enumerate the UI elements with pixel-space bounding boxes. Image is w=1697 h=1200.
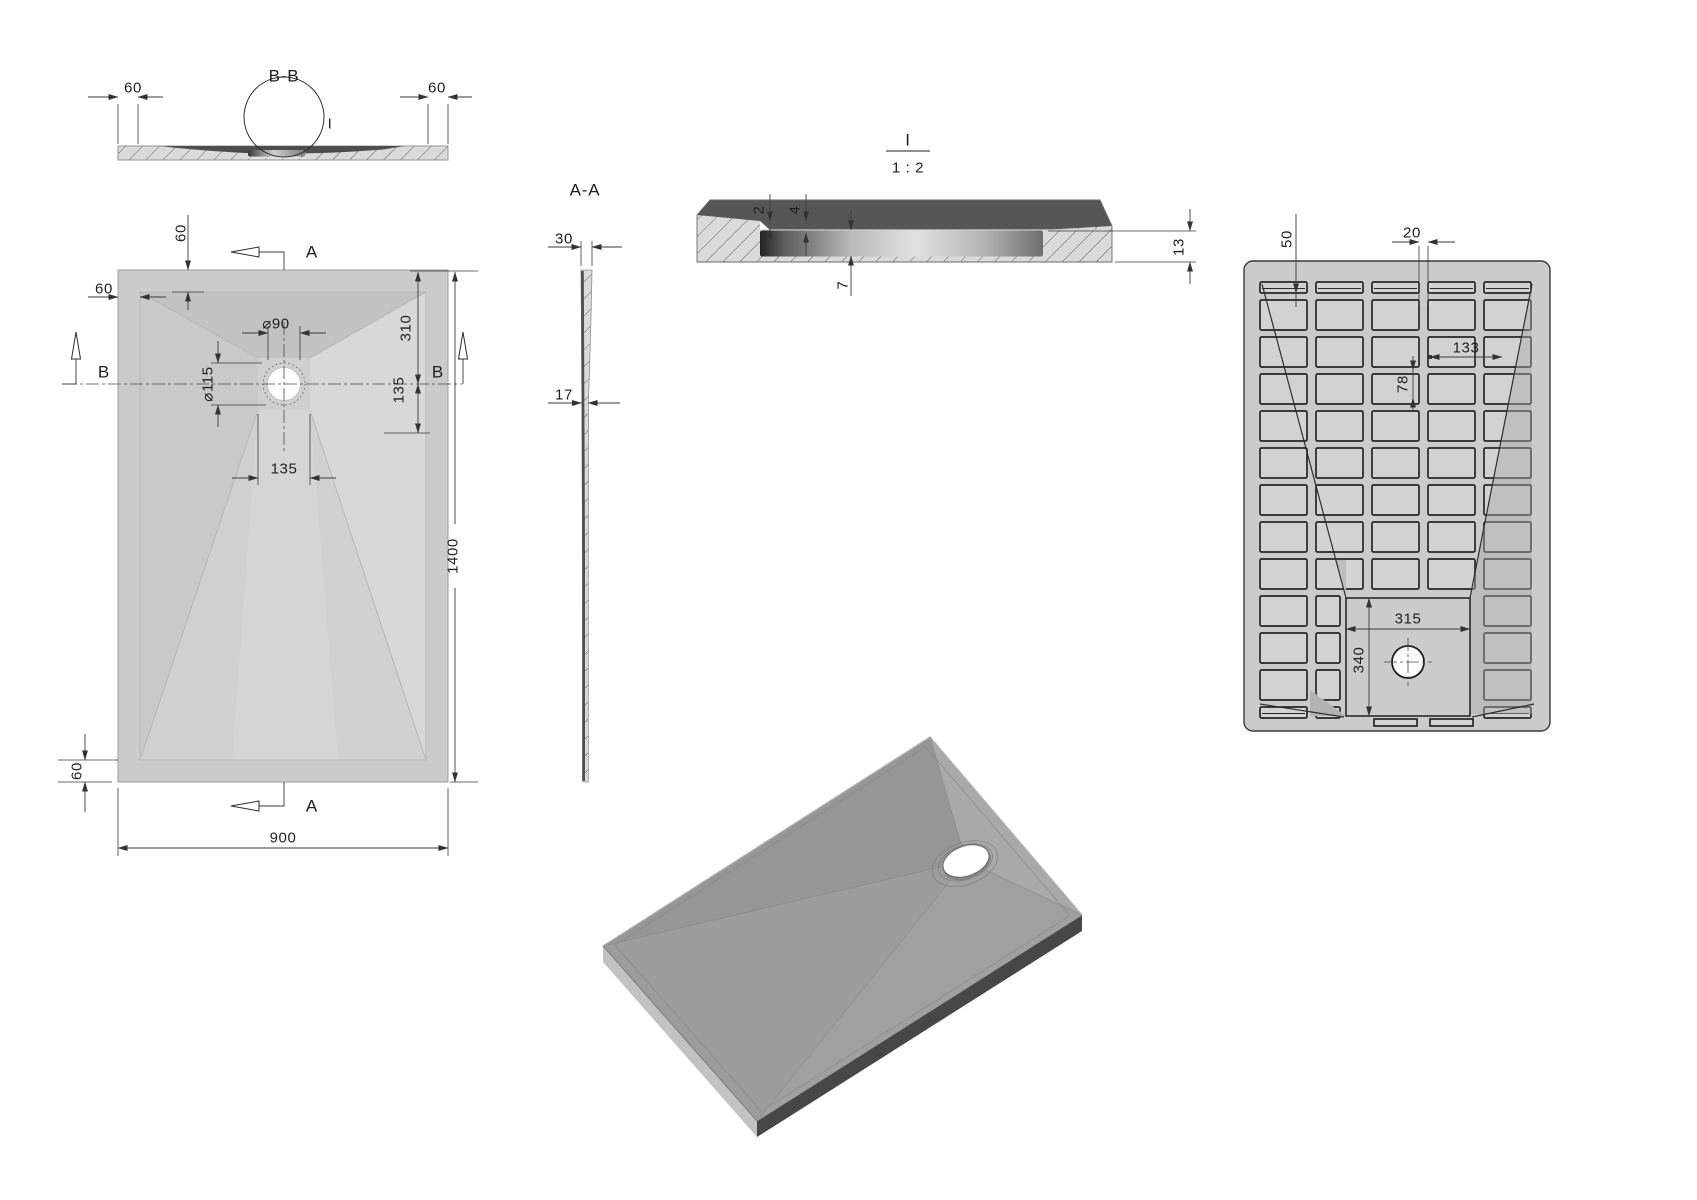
rib-pocket <box>1372 448 1419 478</box>
bb-dim-left: 60 <box>124 80 142 97</box>
isometric-view <box>603 737 1082 1137</box>
drawing-canvas: B-B I 60 60 60 <box>0 0 1697 1200</box>
dim-recess-diameter: ⌀115 <box>200 366 217 401</box>
rib-pocket <box>1316 300 1363 330</box>
detail-callout-circle <box>244 77 324 157</box>
detail-callout-label: I <box>328 116 333 133</box>
dim-drain-from-top: 310 <box>398 315 415 342</box>
dim-drain-offset: 135 <box>391 377 408 404</box>
dim-pocket-pitch-y: 78 <box>1395 375 1412 393</box>
rib-pocket <box>1372 282 1419 293</box>
detail-i-title: I <box>905 131 911 150</box>
dim-step: 4 <box>787 206 804 215</box>
rib-pocket <box>1316 374 1363 404</box>
dim-recess-height: 340 <box>1351 647 1368 674</box>
rib-pocket <box>1484 282 1531 293</box>
section-a-bottom-arrow <box>231 801 259 811</box>
rib-pocket <box>1260 522 1307 552</box>
dim-recess-width: 315 <box>1395 611 1422 628</box>
section-a-top-arrow <box>231 247 259 257</box>
rib-pocket <box>1260 282 1307 293</box>
dim-lip: 2 <box>751 206 768 215</box>
rib-pocket <box>1316 282 1363 293</box>
section-aa-view: A-A 30 17 <box>548 181 622 783</box>
rib-pocket <box>1372 411 1419 441</box>
section-bb-title: B-B <box>269 67 300 86</box>
rib-pocket <box>1260 448 1307 478</box>
bb-dim-right: 60 <box>428 80 446 97</box>
bottom-view: 50 20 133 78 315 340 <box>1244 214 1550 731</box>
rib-pocket <box>1260 374 1307 404</box>
technical-drawing-sheet: B-B I 60 60 60 <box>0 0 1697 1200</box>
section-b-left-arrow <box>72 332 81 359</box>
rib-pocket <box>1260 670 1307 700</box>
dim-pocket-pitch-x: 133 <box>1453 340 1480 357</box>
dim-total-thickness: 13 <box>1171 238 1188 256</box>
plan-view: 60 A 60 B B ⌀90 ⌀115 310 135 <box>58 215 478 856</box>
rib-pocket <box>1428 522 1475 552</box>
rib-pocket <box>1372 559 1419 589</box>
rib-pocket <box>1428 300 1475 330</box>
dim-mid-thickness: 17 <box>555 387 573 404</box>
rib-pocket <box>1316 522 1363 552</box>
rib-pocket <box>1428 559 1475 589</box>
dim-edge-thickness: 30 <box>555 231 573 248</box>
rib-pocket <box>1428 411 1475 441</box>
rib-pocket <box>1260 633 1307 663</box>
stub-pocket <box>1374 719 1417 726</box>
section-aa-title: A-A <box>570 181 601 200</box>
rib-pocket <box>1428 448 1475 478</box>
aa-top-surface-edge <box>582 271 584 781</box>
rib-pocket <box>1372 337 1419 367</box>
rib-pocket <box>1428 282 1475 293</box>
rib-pocket <box>1316 411 1363 441</box>
rib-pocket <box>1428 374 1475 404</box>
section-b-left-label: B <box>98 363 110 382</box>
dim-top-border: 60 <box>173 224 190 242</box>
detail-i-view: I 1 : 2 2 4 7 13 <box>697 131 1196 297</box>
rib-pocket <box>1316 596 1340 626</box>
stub-pocket <box>1430 719 1473 726</box>
dim-width: 900 <box>270 830 297 847</box>
rib-pocket <box>1260 707 1307 718</box>
rib-pocket <box>1316 448 1363 478</box>
dim-channel-width: 135 <box>271 461 298 478</box>
rib-pocket <box>1260 559 1307 589</box>
dim-left-border: 60 <box>95 281 113 298</box>
rib-pocket <box>1316 633 1340 663</box>
section-b-right-arrow <box>459 332 468 359</box>
dim-length: 1400 <box>445 538 462 574</box>
section-b-right-label: B <box>432 363 444 382</box>
rib-pocket <box>1372 300 1419 330</box>
dim-bottom-border: 60 <box>69 762 86 780</box>
rib-pocket <box>1428 485 1475 515</box>
section-a-top-label: A <box>306 243 318 262</box>
section-a-bottom-label: A <box>306 797 318 816</box>
detail-i-scale: 1 : 2 <box>892 160 924 177</box>
rib-pocket <box>1260 485 1307 515</box>
detail-drain-insert <box>760 231 1043 257</box>
detail-hatch-left <box>697 215 760 262</box>
dim-pocket-size: 50 <box>1279 230 1296 248</box>
rib-pocket <box>1316 670 1340 700</box>
rib-pocket <box>1316 337 1363 367</box>
dim-rib-width: 20 <box>1403 225 1421 242</box>
rib-pocket <box>1260 596 1307 626</box>
dim-drain-diameter: ⌀90 <box>262 316 290 333</box>
rib-pocket <box>1372 522 1419 552</box>
section-bb-view: B-B I 60 60 <box>88 67 472 161</box>
dim-insert-depth: 7 <box>835 281 852 290</box>
rib-pocket <box>1372 485 1419 515</box>
